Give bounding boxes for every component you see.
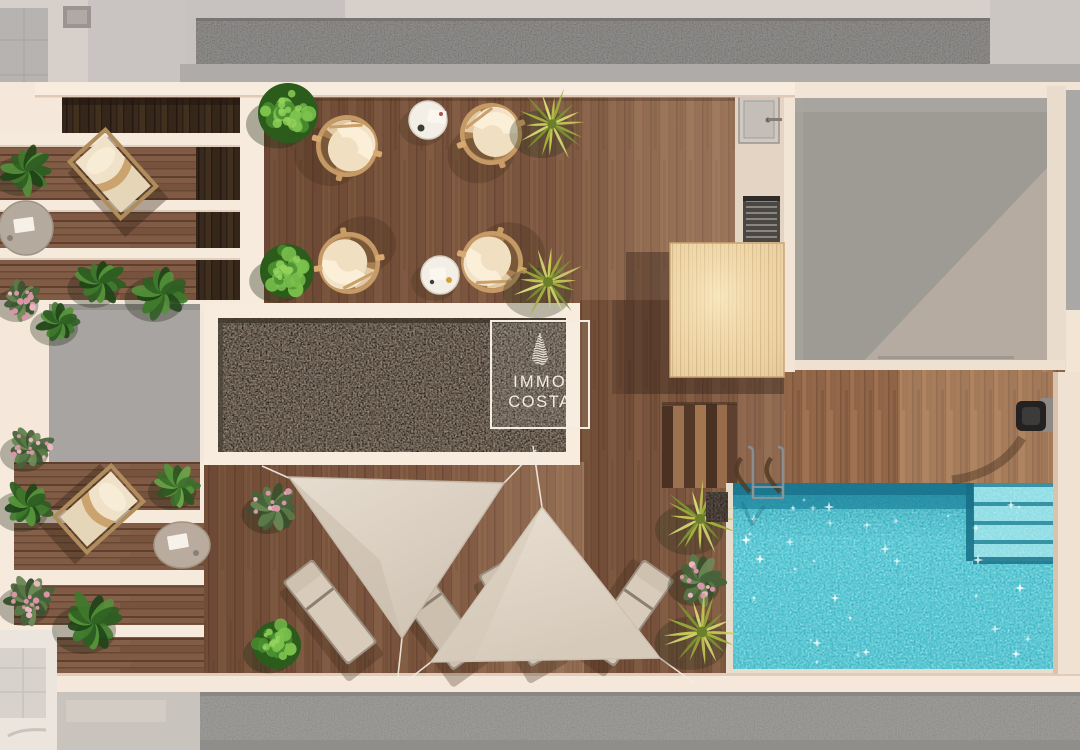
svg-text:COSTA: COSTA	[508, 393, 572, 411]
svg-text:IMMO: IMMO	[513, 373, 567, 391]
